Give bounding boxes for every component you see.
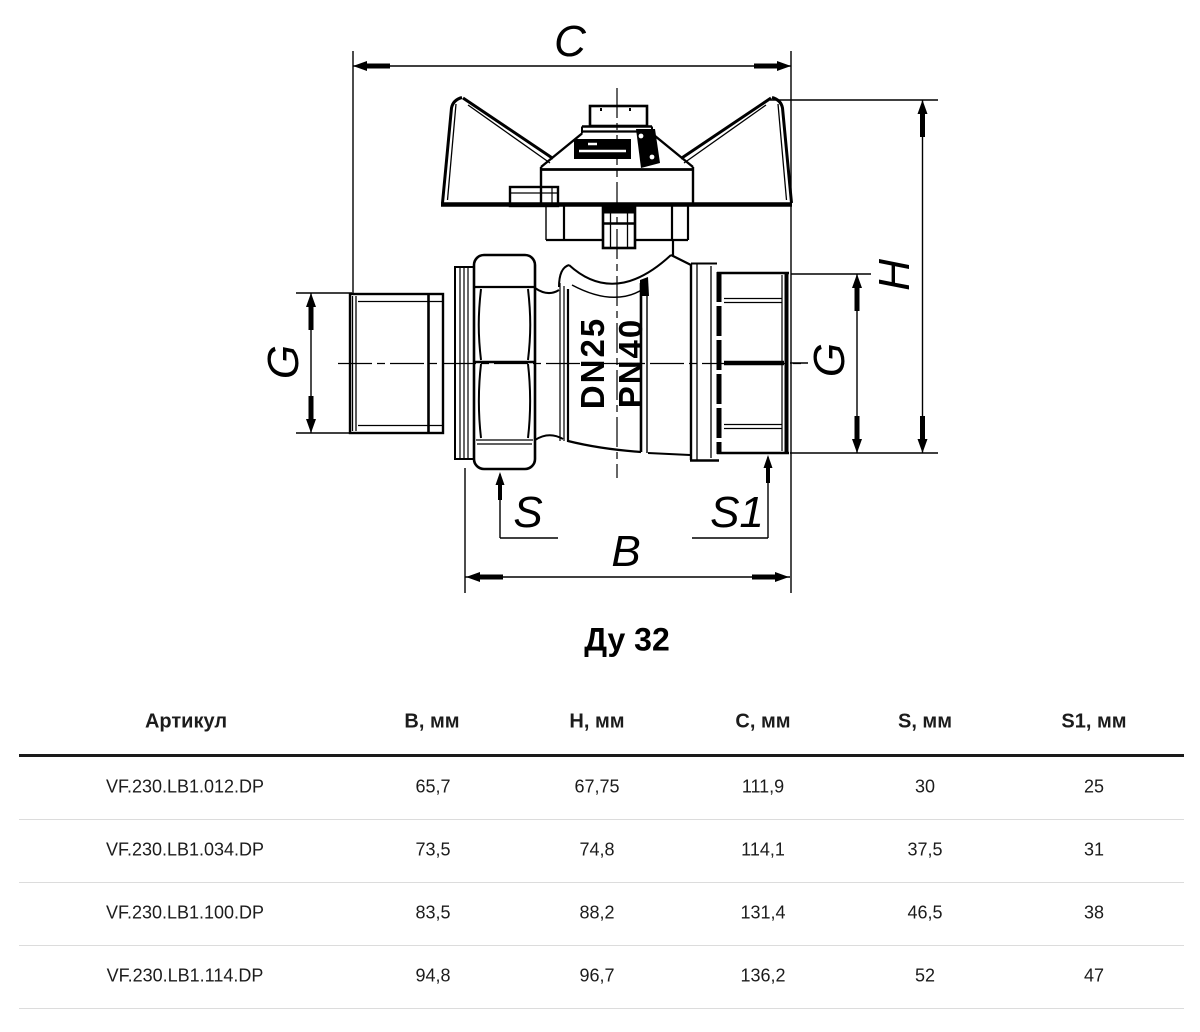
svg-text:PN40: PN40: [612, 318, 649, 409]
svg-text:G: G: [805, 343, 854, 377]
svg-text:S1: S1: [710, 488, 764, 537]
svg-text:B: B: [611, 527, 640, 576]
svg-text:H: H: [870, 259, 919, 291]
svg-text:G: G: [259, 345, 308, 379]
svg-text:DN25: DN25: [574, 317, 611, 409]
svg-text:C: C: [554, 17, 587, 66]
svg-text:S: S: [513, 488, 542, 537]
